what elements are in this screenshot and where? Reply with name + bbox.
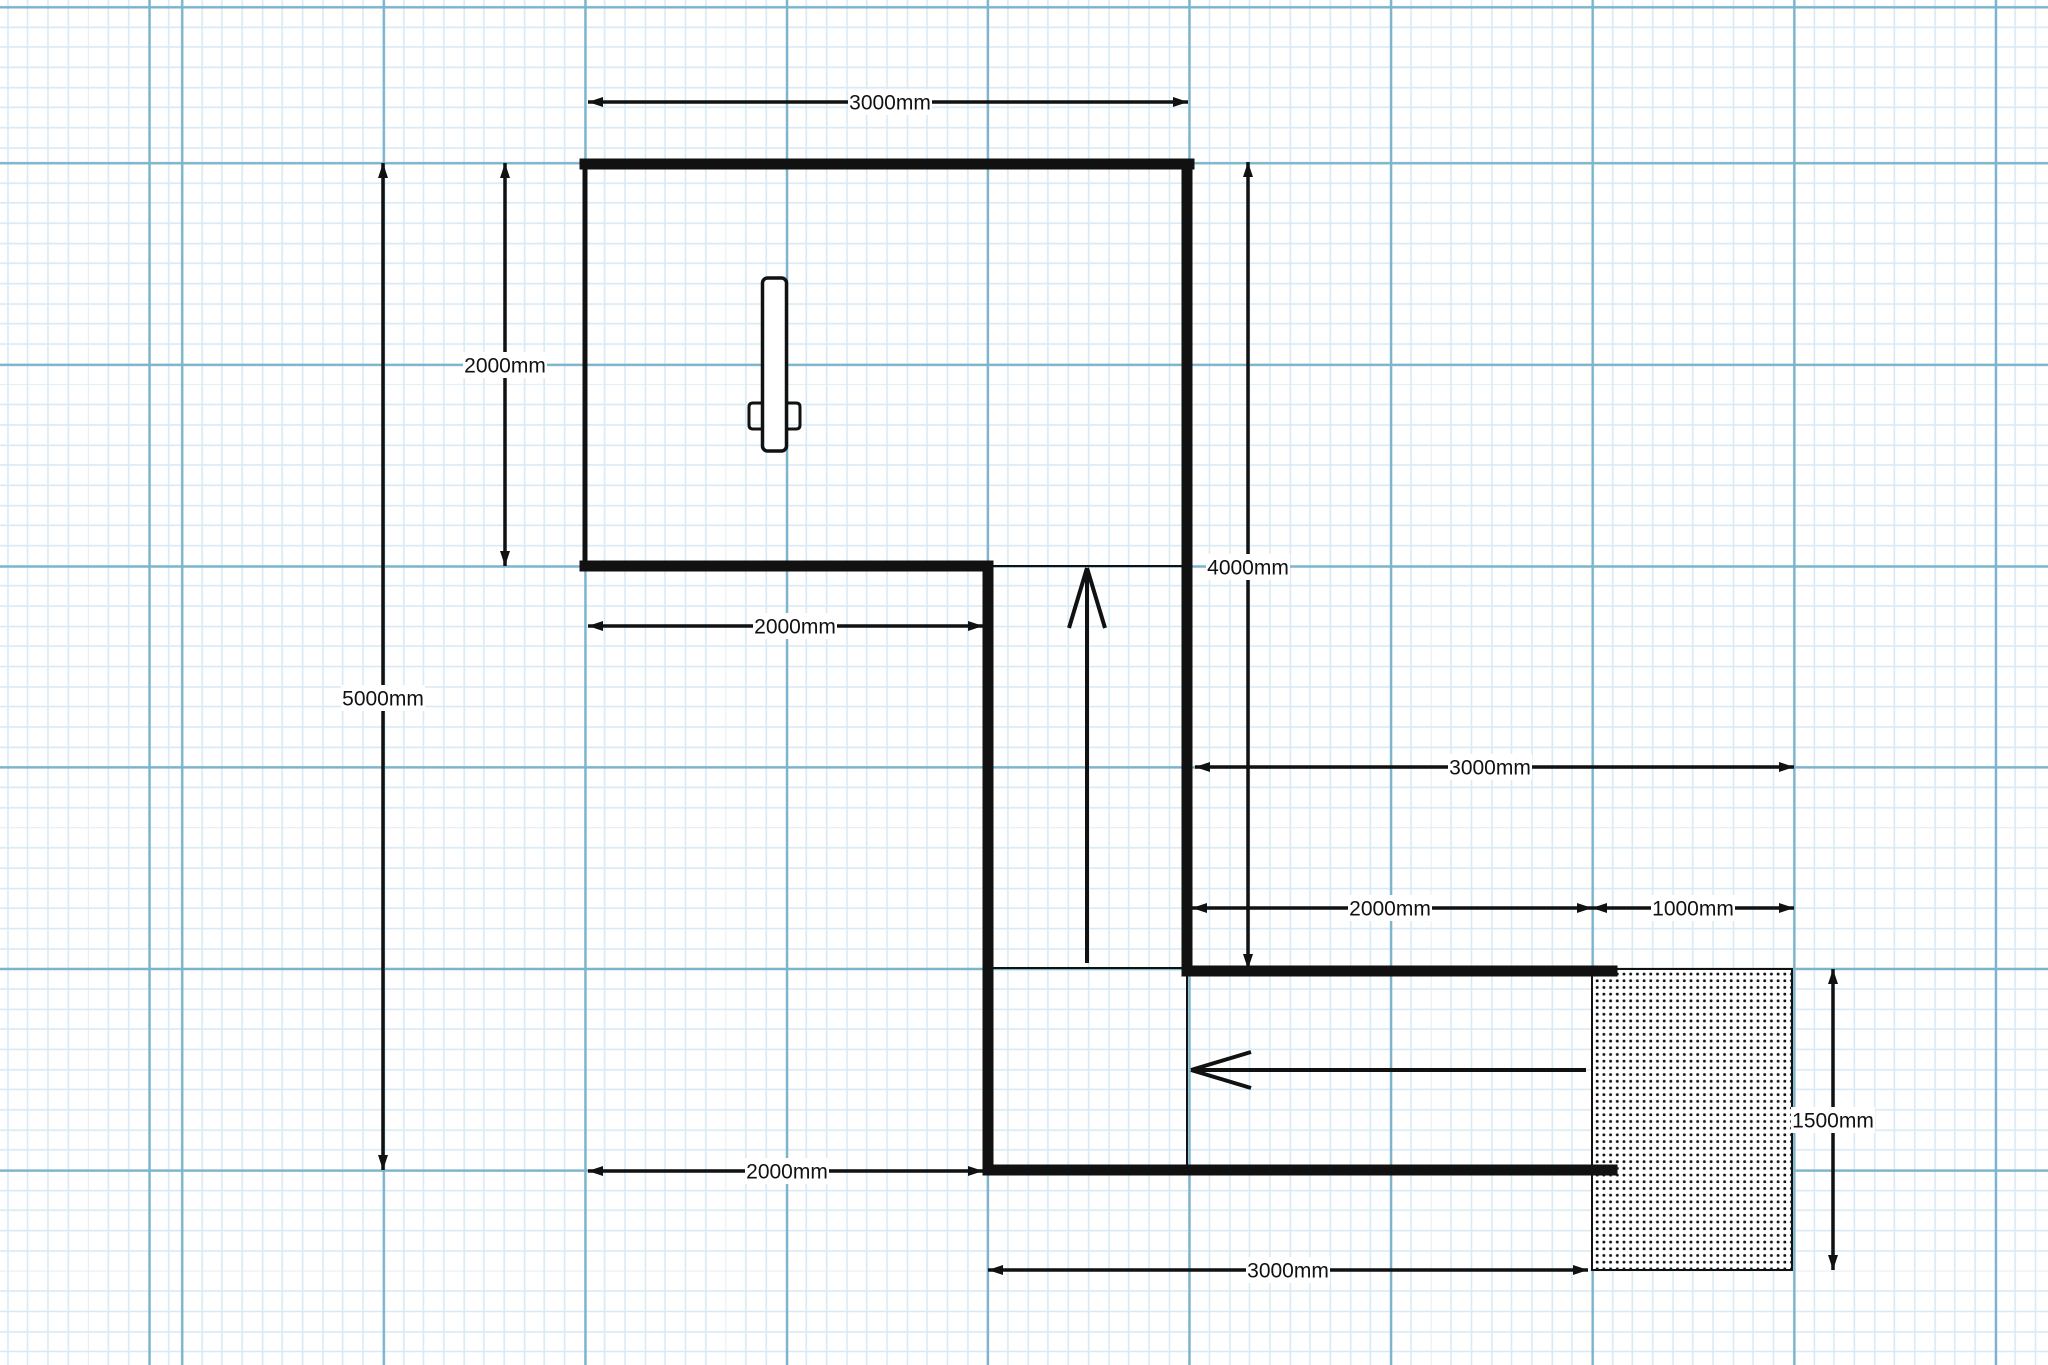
floorplan-app: { "canvas": { "width": 2048, "height": 1… [0, 0, 2048, 1365]
dim-right-4000-label[interactable]: 4000mm [1207, 557, 1289, 580]
dim-left-2000-label[interactable]: 2000mm [464, 355, 546, 378]
drawing-canvas[interactable]: 3000mm5000mm2000mm2000mm4000mm3000mm2000… [0, 0, 2048, 1365]
flow-arrow-up-head [1087, 568, 1105, 628]
dim-top-3000-arrow-end [1173, 97, 1188, 107]
dim-bottom-2000-arrow-end [968, 1166, 983, 1176]
flow-arrow-up-head [1069, 568, 1087, 628]
dim-right-4000-arrow-start [1243, 162, 1253, 177]
dim-right-1000-arrow-start [1592, 903, 1607, 913]
dim-left-5000-arrow-end [378, 1155, 388, 1170]
dim-bottom-3000-arrow-end [1573, 1265, 1588, 1275]
dim-right-1500-label[interactable]: 1500mm [1792, 1110, 1874, 1133]
dim-mid-2000-label[interactable]: 2000mm [754, 616, 836, 639]
door-symbol[interactable] [763, 278, 787, 451]
dim-bottom-2000-label[interactable]: 2000mm [746, 1161, 828, 1184]
dim-left-2000-arrow-start [500, 163, 510, 178]
dim-right-1000-label[interactable]: 1000mm [1652, 898, 1734, 921]
flow-arrow-left-head [1191, 1070, 1251, 1088]
dim-right-1000-arrow-end [1779, 903, 1794, 913]
dim-left-2000-arrow-end [500, 551, 510, 566]
dim-right-1500-arrow-start [1828, 969, 1838, 984]
dim-left-5000-label[interactable]: 5000mm [342, 688, 424, 711]
dim-top-3000-label[interactable]: 3000mm [849, 92, 931, 115]
dim-bottom-2000-arrow-start [588, 1166, 603, 1176]
dim-right-2000-label[interactable]: 2000mm [1349, 898, 1431, 921]
dim-top-3000-arrow-start [588, 97, 603, 107]
dim-bottom-3000-label[interactable]: 3000mm [1247, 1260, 1329, 1283]
dim-mid-2000-arrow-start [588, 621, 603, 631]
dim-right-3000-arrow-end [1779, 762, 1794, 772]
dim-mid-2000-arrow-end [968, 621, 983, 631]
hatched-area[interactable] [1592, 969, 1792, 1270]
dim-right-2000-arrow-end [1577, 903, 1592, 913]
dim-left-5000-arrow-start [378, 163, 388, 178]
dim-right-3000-arrow-start [1195, 762, 1210, 772]
dim-right-3000-label[interactable]: 3000mm [1449, 757, 1531, 780]
flow-arrow-left-head [1191, 1052, 1251, 1070]
floor-plan-svg: 3000mm5000mm2000mm2000mm4000mm3000mm2000… [0, 0, 2048, 1365]
dim-bottom-3000-arrow-start [988, 1265, 1003, 1275]
dim-right-1500-arrow-end [1828, 1255, 1838, 1270]
dim-right-2000-arrow-start [1192, 903, 1207, 913]
